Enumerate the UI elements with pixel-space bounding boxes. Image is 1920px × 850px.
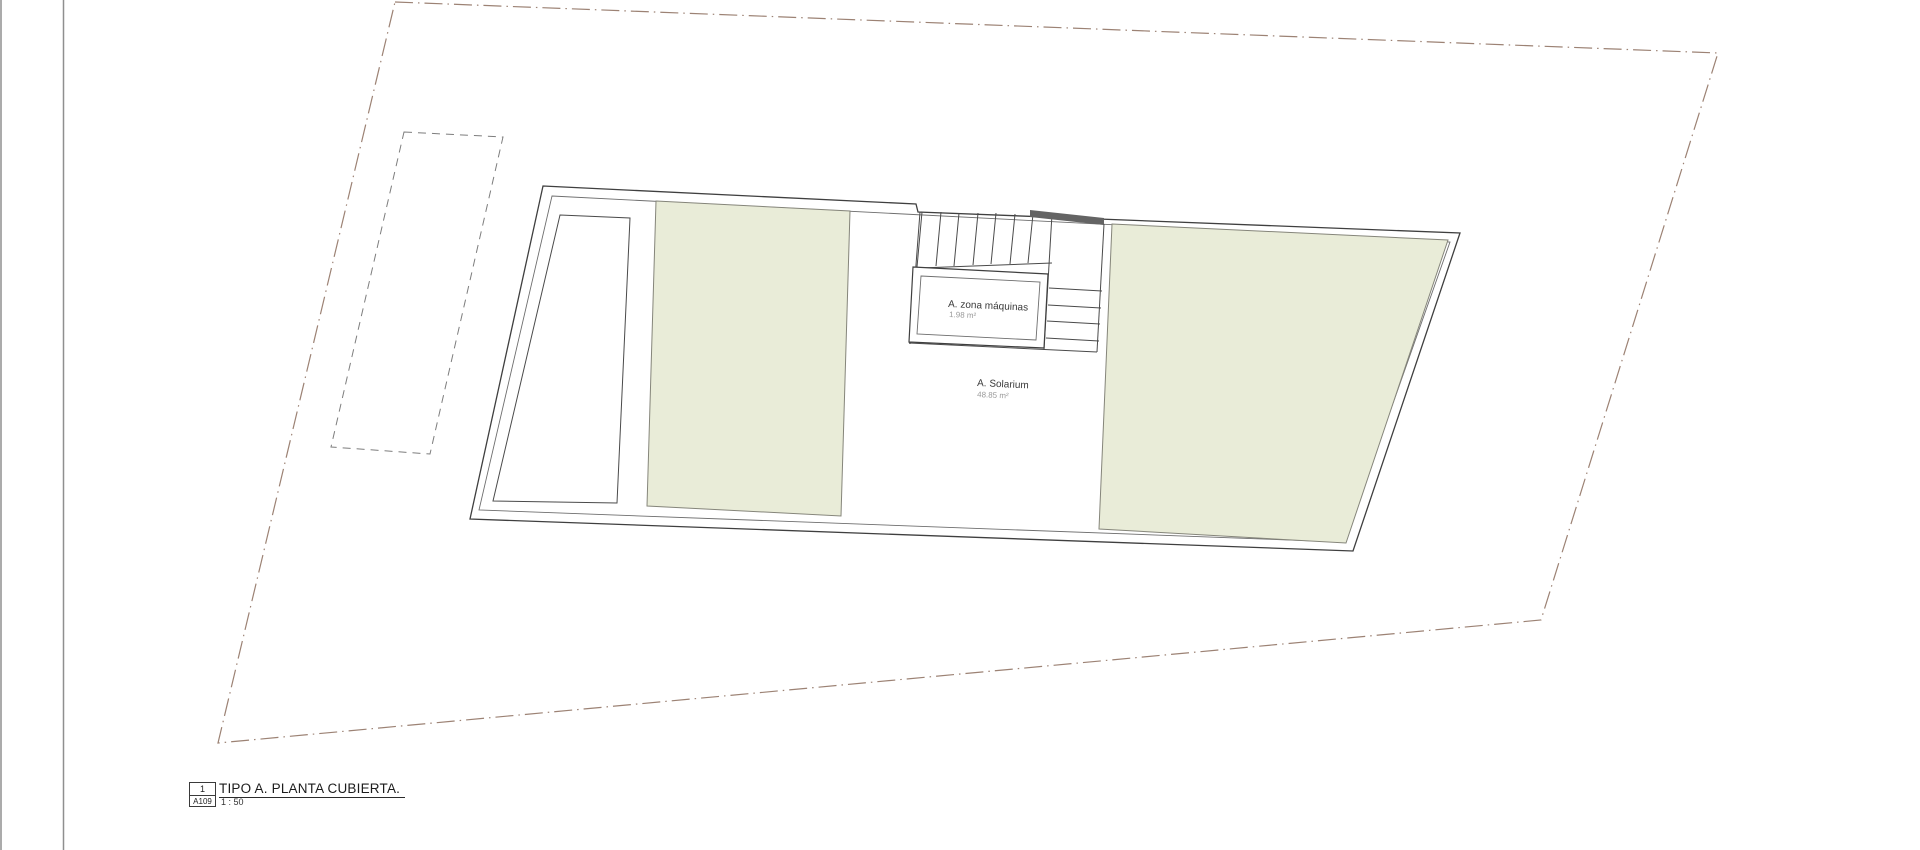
title-block-reference-box: 1 A109 (189, 782, 216, 807)
pool-dashed-outline (331, 132, 503, 454)
drawing-title: TIPO A. PLANTA CUBIERTA. (219, 781, 405, 798)
drawing-scale: 1 : 50 (221, 797, 244, 807)
sheet-code: A109 (190, 796, 215, 807)
drawing-sheet: A. zona máquinas 1.98 m² A. Solarium 48.… (0, 0, 1920, 850)
detail-number: 1 (190, 783, 215, 796)
solarium-label: A. Solarium (977, 378, 1029, 391)
roof-plan-drawing: A. zona máquinas 1.98 m² A. Solarium 48.… (0, 0, 1920, 850)
terrace-right (1099, 224, 1448, 543)
solarium-area: 48.85 m² (977, 390, 1009, 400)
terrace-left (647, 201, 850, 516)
machine-room-area: 1.98 m² (949, 310, 977, 320)
